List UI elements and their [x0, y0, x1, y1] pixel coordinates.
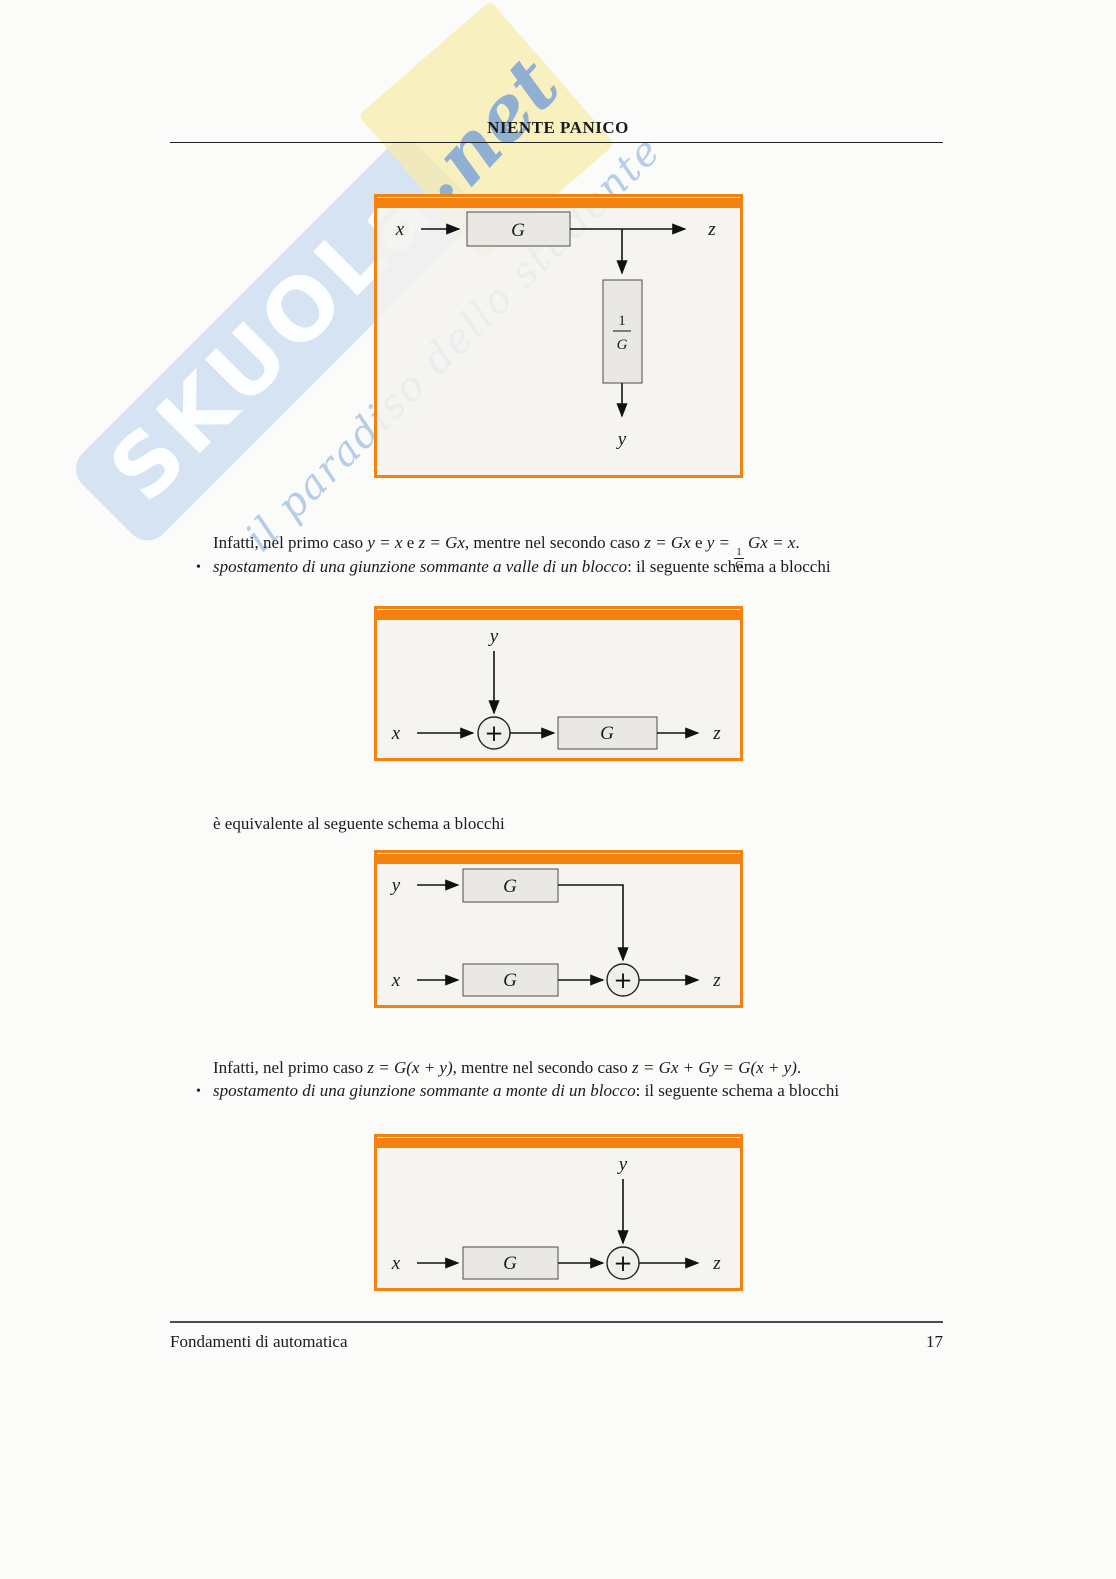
block-diagram-3: y G + x G z: [374, 850, 743, 1008]
bullet-item-valle: •spostamento di una giunzione sommante a…: [196, 557, 831, 577]
math-run: Gx = x: [748, 533, 795, 552]
math-run: z = Gx: [418, 533, 464, 552]
diagram1-canvas: x G z 1 G y: [377, 208, 740, 475]
block-diagram-1: x G z 1 G y: [374, 194, 743, 478]
figure-accent-bar: [377, 610, 740, 620]
math-run: y =: [707, 533, 730, 552]
diagram3-row2-input-label: x: [391, 970, 401, 991]
sum-plus-sign: +: [613, 968, 632, 994]
diagram3-canvas: y G + x G z: [377, 864, 740, 1005]
text-run: Infatti, nel primo caso: [213, 1058, 367, 1077]
text-run: e: [691, 533, 707, 552]
bullet-rest-text: : il seguente schema a blocchi: [627, 557, 830, 576]
diagram3-row2-gain-label: G: [503, 970, 517, 991]
figure-accent-bar: [377, 198, 740, 208]
diagram2-input-label: x: [391, 723, 401, 744]
math-run: z = Gx + Gy = G(x + y): [632, 1058, 797, 1077]
diagram1-gain-label: G: [511, 220, 525, 241]
bullet-marker: •: [196, 1084, 213, 1100]
bullet-marker: •: [196, 560, 213, 576]
text-run: , mentre nel secondo caso: [465, 533, 644, 552]
bullet-italic-text: spostamento di una giunzione sommante a …: [213, 1081, 636, 1100]
diagram4-input-label: x: [391, 1253, 401, 1274]
diagram1-branch-output-label: y: [616, 429, 627, 450]
bullet-rest-text: : il seguente schema a blocchi: [636, 1081, 839, 1100]
math-run: z = Gx: [644, 533, 690, 552]
bullet-italic-text: spostamento di una giunzione sommante a …: [213, 557, 627, 576]
diagram3-row1-input-label: y: [390, 875, 401, 896]
text-run: , mentre nel secondo caso: [453, 1058, 632, 1077]
page-header-title: NIENTE PANICO: [0, 118, 1116, 138]
math-run: y = x: [367, 533, 402, 552]
math-run: z = G(x + y): [367, 1058, 452, 1077]
header-rule: [170, 142, 943, 143]
diagram2-canvas: y + x G z: [377, 620, 740, 758]
diagram2-gain-label: G: [600, 723, 614, 744]
diagram1-frac-denominator: G: [617, 337, 628, 353]
diagram4-top-input-label: y: [617, 1154, 628, 1175]
paragraph-intro-2: Infatti, nel primo caso z = G(x + y), me…: [213, 1058, 801, 1078]
diagram1-output-label: z: [707, 219, 716, 240]
diagram1-input-label: x: [395, 219, 405, 240]
sum-plus-sign: +: [484, 721, 503, 747]
block-diagram-4: y + x G z: [374, 1134, 743, 1291]
block-diagram-2: y + x G z: [374, 606, 743, 761]
text-run: Infatti, nel primo caso: [213, 533, 367, 552]
diagram3-row1-gain-label: G: [503, 876, 517, 897]
footer-rule: [170, 1321, 943, 1323]
figure-accent-bar: [377, 1138, 740, 1148]
text-run: .: [797, 1058, 801, 1077]
diagram2-top-input-label: y: [488, 626, 499, 647]
paragraph-equivalence: è equivalente al seguente schema a blocc…: [213, 814, 505, 834]
diagram4-output-label: z: [712, 1253, 721, 1274]
figure-accent-bar: [377, 854, 740, 864]
diagram2-output-label: z: [712, 723, 721, 744]
corner-signal-arrow: [558, 885, 623, 960]
diagram4-gain-label: G: [503, 1253, 517, 1274]
diagram3-output-label: z: [712, 970, 721, 991]
text-run: e: [402, 533, 418, 552]
bullet-item-monte: •spostamento di una giunzione sommante a…: [196, 1081, 839, 1101]
footer-page-number: 17: [170, 1332, 943, 1352]
document-page: SKUOLa . net il paradiso dello studente …: [0, 0, 1116, 1579]
text-run: .: [795, 533, 799, 552]
diagram1-frac-numerator: 1: [618, 313, 626, 329]
diagram4-canvas: y + x G z: [377, 1148, 740, 1288]
sum-plus-sign: +: [613, 1251, 632, 1277]
